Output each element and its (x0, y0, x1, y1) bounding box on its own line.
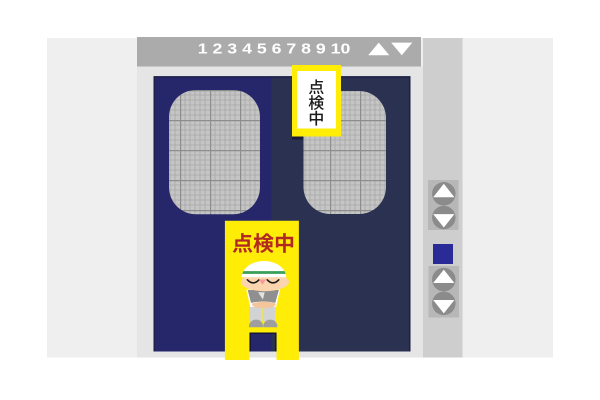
svg-text:1 2 3 4 5 6 7 8 9 10: 1 2 3 4 5 6 7 8 9 10 (198, 40, 350, 57)
